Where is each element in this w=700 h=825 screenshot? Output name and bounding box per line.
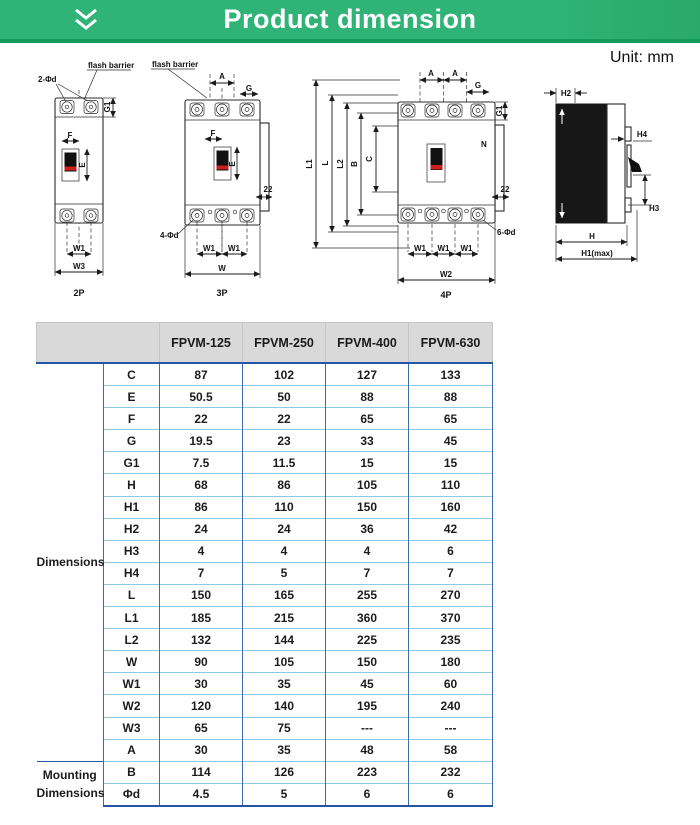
value-cell: 42	[409, 518, 493, 540]
page-title: Product dimension	[223, 4, 476, 35]
value-cell: 5	[243, 783, 326, 806]
value-cell: 110	[243, 496, 326, 518]
flash-barrier-label: flash barrier	[152, 60, 198, 69]
table-row: F22226565	[37, 408, 493, 430]
dim-label-w1: W1	[73, 244, 86, 253]
value-cell: 23	[243, 430, 326, 452]
dim-label-h4: H4	[637, 130, 648, 139]
value-cell: ---	[326, 717, 409, 739]
dim-label-w1: W1	[203, 244, 216, 253]
table-row: L1185215360370	[37, 607, 493, 629]
neutral-pole-label: N	[481, 140, 487, 149]
value-cell: 60	[409, 673, 493, 695]
column-header: FPVM-630	[409, 323, 493, 364]
technical-drawings: F E flash barrier 2-Φd G1 W1 W3 2P	[0, 42, 700, 314]
value-cell: 105	[326, 474, 409, 496]
value-cell: 50.5	[160, 386, 243, 408]
value-cell: 255	[326, 584, 409, 606]
value-cell: 4	[243, 540, 326, 562]
value-cell: 75	[243, 717, 326, 739]
value-cell: 6	[409, 540, 493, 562]
value-cell: 15	[409, 452, 493, 474]
value-cell: 86	[243, 474, 326, 496]
value-cell: 88	[409, 386, 493, 408]
hole-callout: 4-Φd	[160, 231, 179, 240]
hole-callout: 6-Φd	[497, 228, 516, 237]
dim-label-a: A	[219, 72, 225, 81]
table-row: H186110150160	[37, 496, 493, 518]
param-cell: H1	[104, 496, 160, 518]
value-cell: 5	[243, 562, 326, 584]
dim-label-w1: W1	[414, 244, 427, 253]
value-cell: 7	[326, 562, 409, 584]
value-cell: 144	[243, 629, 326, 651]
value-cell: ---	[409, 717, 493, 739]
value-cell: 4	[326, 540, 409, 562]
dim-label-h3: H3	[649, 204, 660, 213]
value-cell: 232	[409, 761, 493, 783]
row-group-label: Dimensions	[37, 363, 104, 761]
value-cell: 65	[409, 408, 493, 430]
value-cell: 35	[243, 673, 326, 695]
dim-label-l: L	[321, 160, 330, 165]
table-row: H224243642	[37, 518, 493, 540]
param-cell: C	[104, 363, 160, 386]
value-cell: 160	[409, 496, 493, 518]
dim-label-w3: W3	[73, 262, 86, 271]
table-row: G17.511.51515	[37, 452, 493, 474]
value-cell: 22	[160, 408, 243, 430]
table-row: L150165255270	[37, 584, 493, 606]
param-cell: H3	[104, 540, 160, 562]
double-chevron-down-icon	[72, 7, 100, 38]
hole-callout: 2-Φd	[38, 75, 57, 84]
value-cell: 4	[160, 540, 243, 562]
param-cell: L1	[104, 607, 160, 629]
table-row: L2132144225235	[37, 629, 493, 651]
value-cell: 30	[160, 739, 243, 761]
value-cell: 90	[160, 651, 243, 673]
param-cell: H4	[104, 562, 160, 584]
value-cell: 15	[326, 452, 409, 474]
value-cell: 45	[409, 430, 493, 452]
drawing-side-view: H2 H4 H3 H H1(max)	[544, 88, 660, 262]
corner-cell	[37, 323, 160, 364]
dim-label-f: F	[211, 129, 216, 138]
param-cell: G	[104, 430, 160, 452]
value-cell: 223	[326, 761, 409, 783]
dim-label-w: W	[218, 264, 226, 273]
param-cell: H2	[104, 518, 160, 540]
value-cell: 7.5	[160, 452, 243, 474]
breaker-side-body	[556, 104, 607, 223]
dim-label-h2: H2	[561, 89, 572, 98]
flash-barrier-label: flash barrier	[88, 61, 134, 70]
param-cell: L	[104, 584, 160, 606]
value-cell: 22	[243, 408, 326, 430]
value-cell: 126	[243, 761, 326, 783]
value-cell: 133	[409, 363, 493, 386]
dim-label-l1: L1	[305, 159, 314, 169]
dim-label-w2: W2	[440, 270, 453, 279]
table-row: Mounting DimensionsB114126223232	[37, 761, 493, 783]
param-cell: F	[104, 408, 160, 430]
table-row: DimensionsC87102127133	[37, 363, 493, 386]
caption-3p: 3P	[216, 288, 227, 298]
value-cell: 235	[409, 629, 493, 651]
dim-label-a: A	[452, 69, 458, 78]
param-cell: W1	[104, 673, 160, 695]
value-cell: 102	[243, 363, 326, 386]
value-cell: 215	[243, 607, 326, 629]
dim-label-c: C	[365, 156, 374, 162]
value-cell: 68	[160, 474, 243, 496]
value-cell: 185	[160, 607, 243, 629]
column-header: FPVM-400	[326, 323, 409, 364]
dim-label-22: 22	[264, 185, 273, 194]
value-cell: 30	[160, 673, 243, 695]
param-cell: G1	[104, 452, 160, 474]
dim-label-a: A	[428, 69, 434, 78]
dim-label-h1max: H1(max)	[581, 249, 613, 258]
value-cell: 11.5	[243, 452, 326, 474]
column-header: FPVM-250	[243, 323, 326, 364]
table-row: A30354858	[37, 739, 493, 761]
drawing-2p: F E flash barrier 2-Φd G1 W1 W3 2P	[38, 61, 134, 298]
value-cell: 127	[326, 363, 409, 386]
value-cell: 140	[243, 695, 326, 717]
param-cell: A	[104, 739, 160, 761]
value-cell: 33	[326, 430, 409, 452]
value-cell: 7	[160, 562, 243, 584]
param-cell: Φd	[104, 783, 160, 806]
value-cell: 35	[243, 739, 326, 761]
caption-4p: 4P	[440, 290, 451, 300]
dim-label-w1: W1	[438, 244, 451, 253]
header-banner: Product dimension	[0, 0, 700, 43]
value-cell: 65	[326, 408, 409, 430]
dim-label-g: G	[246, 84, 252, 93]
value-cell: 120	[160, 695, 243, 717]
value-cell: 86	[160, 496, 243, 518]
param-cell: B	[104, 761, 160, 783]
row-group-label: Mounting Dimensions	[37, 761, 104, 806]
dim-label-l2: L2	[336, 159, 345, 169]
value-cell: 48	[326, 739, 409, 761]
param-cell: W2	[104, 695, 160, 717]
value-cell: 180	[409, 651, 493, 673]
table-row: W36575------	[37, 717, 493, 739]
param-cell: W3	[104, 717, 160, 739]
value-cell: 45	[326, 673, 409, 695]
caption-2p: 2P	[73, 288, 84, 298]
value-cell: 110	[409, 474, 493, 496]
table-header-row: FPVM-125 FPVM-250 FPVM-400 FPVM-630	[37, 323, 493, 364]
value-cell: 24	[160, 518, 243, 540]
column-header: FPVM-125	[160, 323, 243, 364]
value-cell: 87	[160, 363, 243, 386]
dimension-table-body: DimensionsC87102127133E50.5508888F222265…	[37, 363, 493, 806]
page: Product dimension Unit: mm	[0, 0, 700, 825]
dim-label-e: E	[228, 161, 237, 167]
param-cell: L2	[104, 629, 160, 651]
value-cell: 24	[243, 518, 326, 540]
value-cell: 6	[326, 783, 409, 806]
dim-label-g1: G1	[495, 105, 504, 116]
value-cell: 195	[326, 695, 409, 717]
value-cell: 150	[160, 584, 243, 606]
dimension-table: FPVM-125 FPVM-250 FPVM-400 FPVM-630 Dime…	[36, 322, 493, 807]
drawing-3p: flash barrier A G F E 22 4-Φd W1 W1	[151, 60, 273, 298]
table-row: G19.5233345	[37, 430, 493, 452]
value-cell: 50	[243, 386, 326, 408]
value-cell: 88	[326, 386, 409, 408]
value-cell: 150	[326, 496, 409, 518]
value-cell: 36	[326, 518, 409, 540]
value-cell: 65	[160, 717, 243, 739]
value-cell: 19.5	[160, 430, 243, 452]
value-cell: 360	[326, 607, 409, 629]
table-row: E50.5508888	[37, 386, 493, 408]
dim-label-g1: G1	[103, 101, 112, 112]
value-cell: 7	[409, 562, 493, 584]
value-cell: 240	[409, 695, 493, 717]
value-cell: 4.5	[160, 783, 243, 806]
dim-label-e: E	[78, 162, 87, 168]
value-cell: 370	[409, 607, 493, 629]
dim-label-22: 22	[501, 185, 510, 194]
dim-label-w1: W1	[228, 244, 241, 253]
dim-label-h: H	[589, 232, 595, 241]
dim-label-f: F	[68, 131, 73, 140]
value-cell: 225	[326, 629, 409, 651]
value-cell: 6	[409, 783, 493, 806]
dim-label-w1: W1	[461, 244, 474, 253]
table-row: H6886105110	[37, 474, 493, 496]
table-row: W2120140195240	[37, 695, 493, 717]
value-cell: 165	[243, 584, 326, 606]
drawing-4p: L1 L L2 B C	[305, 69, 516, 300]
value-cell: 150	[326, 651, 409, 673]
value-cell: 270	[409, 584, 493, 606]
value-cell: 132	[160, 629, 243, 651]
table-row: W130354560	[37, 673, 493, 695]
param-cell: W	[104, 651, 160, 673]
dim-label-g: G	[475, 81, 481, 90]
param-cell: E	[104, 386, 160, 408]
value-cell: 114	[160, 761, 243, 783]
dim-label-b: B	[350, 161, 359, 167]
table-row: W90105150180	[37, 651, 493, 673]
param-cell: H	[104, 474, 160, 496]
value-cell: 105	[243, 651, 326, 673]
value-cell: 58	[409, 739, 493, 761]
